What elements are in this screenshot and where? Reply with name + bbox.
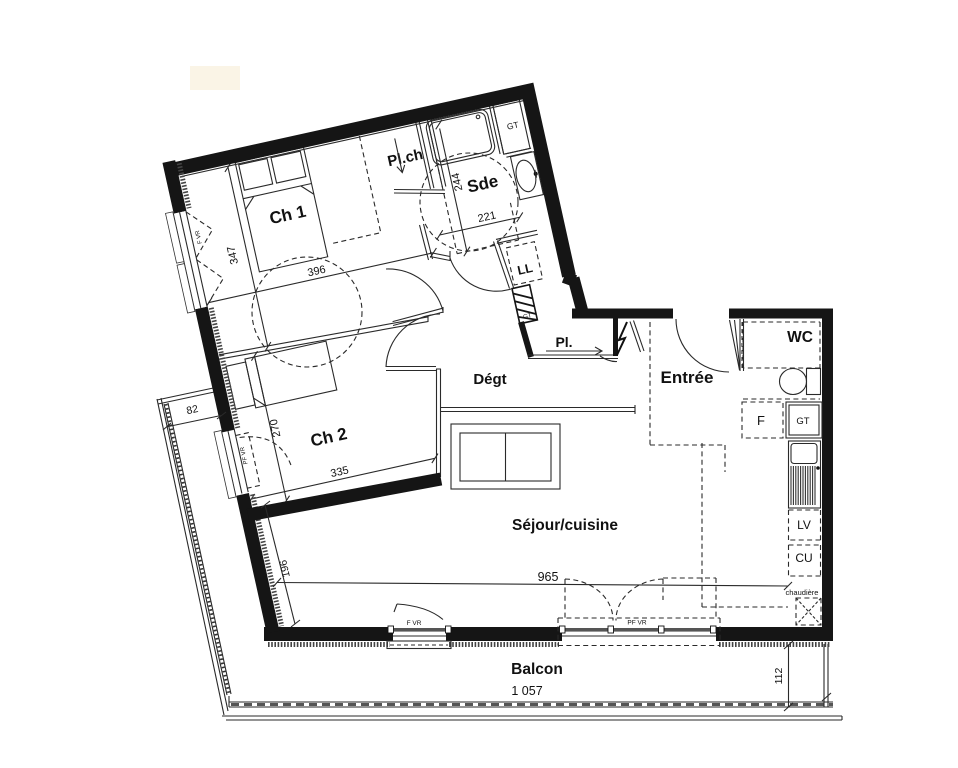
svg-text:F VR: F VR (407, 620, 422, 627)
svg-text:Balcon: Balcon (511, 661, 563, 678)
svg-text:WC: WC (787, 329, 813, 346)
svg-text:F: F (757, 413, 765, 428)
svg-text:965: 965 (538, 570, 559, 584)
svg-text:CU: CU (795, 551, 812, 565)
svg-text:chaudière: chaudière (786, 588, 819, 597)
svg-text:Entrée: Entrée (661, 368, 714, 387)
svg-text:Séjour/cuisine: Séjour/cuisine (512, 517, 618, 534)
svg-text:Dégt: Dégt (473, 371, 506, 388)
svg-text:Pl.: Pl. (555, 334, 572, 350)
svg-text:PF VR: PF VR (627, 620, 646, 627)
svg-text:112: 112 (773, 667, 785, 684)
svg-text:GT: GT (796, 416, 809, 427)
svg-text:1 057: 1 057 (511, 684, 542, 698)
svg-text:LV: LV (797, 518, 811, 532)
